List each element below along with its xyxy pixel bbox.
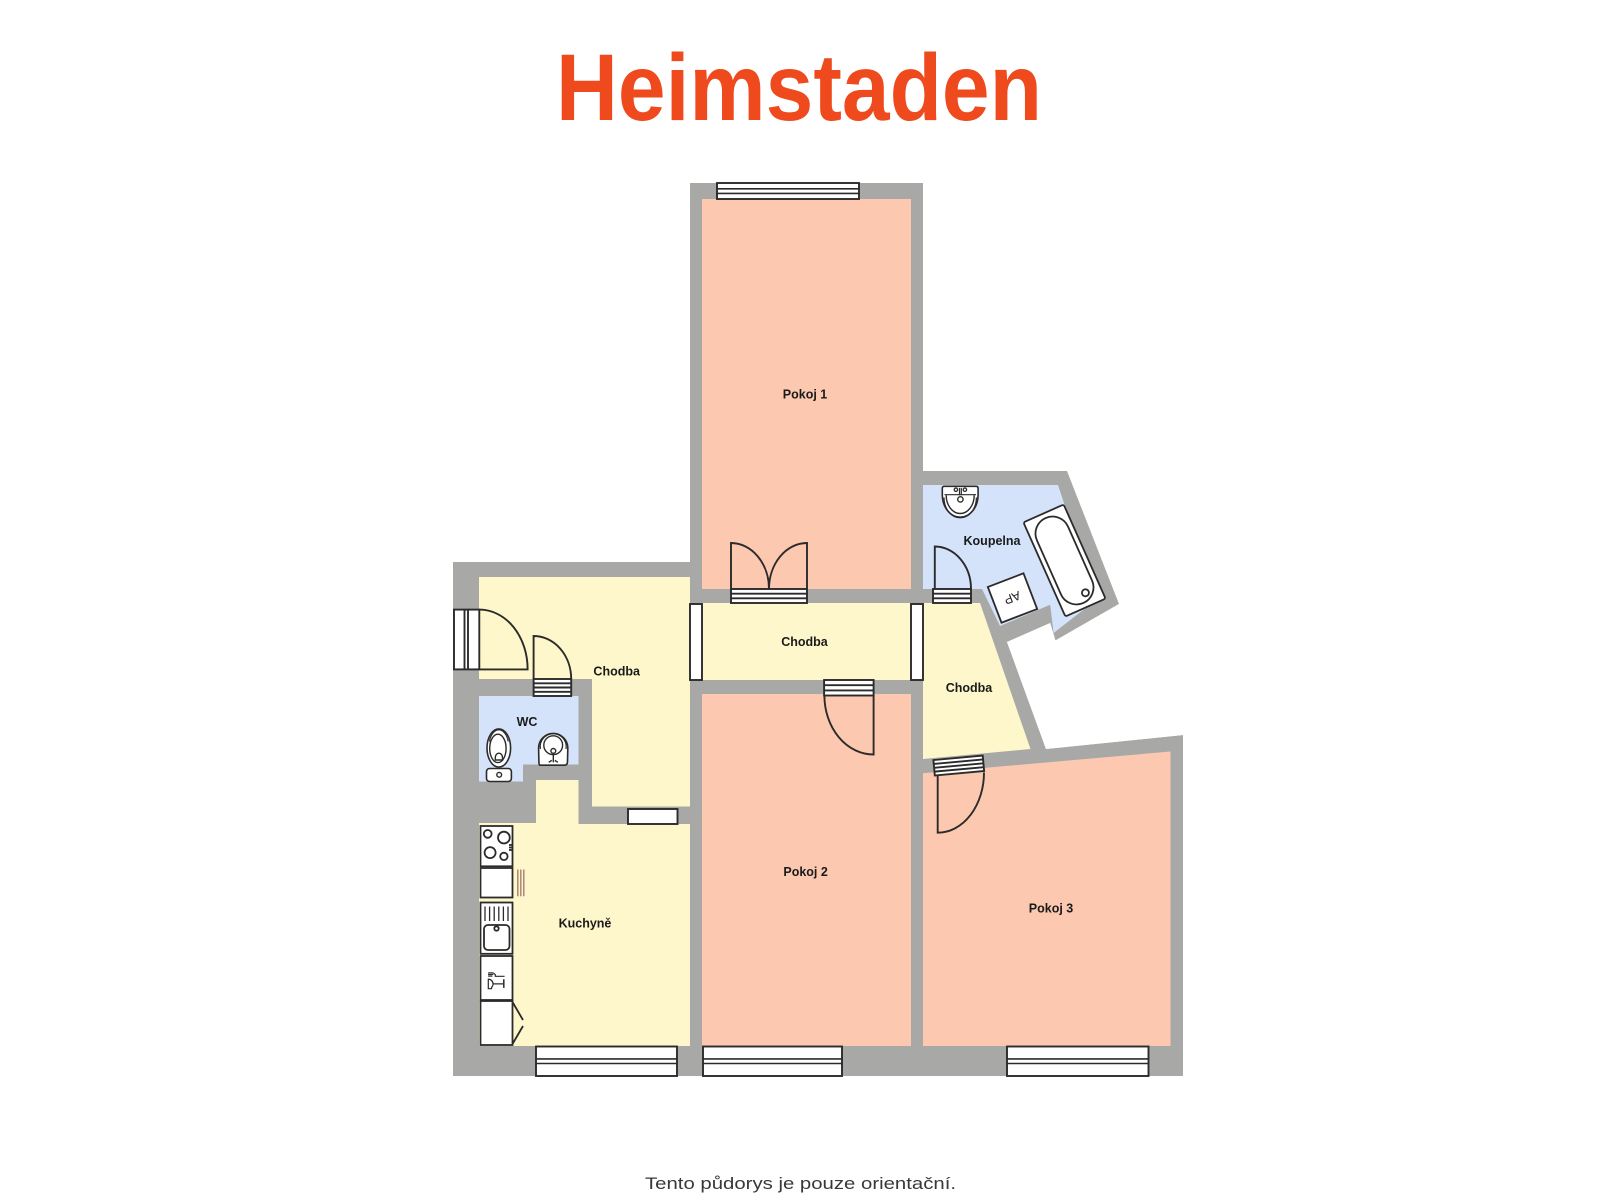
svg-text:Pokoj 1: Pokoj 1: [783, 388, 828, 402]
svg-text:Chodba: Chodba: [946, 681, 994, 695]
svg-text:Heimstaden: Heimstaden: [556, 35, 1042, 141]
svg-text:Koupelna: Koupelna: [964, 534, 1022, 548]
svg-text:Chodba: Chodba: [781, 635, 829, 649]
svg-text:Pokoj 3: Pokoj 3: [1029, 902, 1074, 916]
svg-text:Tento půdorys je pouze orienta: Tento půdorys je pouze orientační.: [645, 1175, 956, 1193]
svg-text:WC: WC: [517, 715, 538, 729]
svg-text:Pokoj 2: Pokoj 2: [783, 865, 828, 879]
svg-text:Chodba: Chodba: [593, 665, 641, 679]
svg-text:Kuchyně: Kuchyně: [559, 917, 612, 931]
